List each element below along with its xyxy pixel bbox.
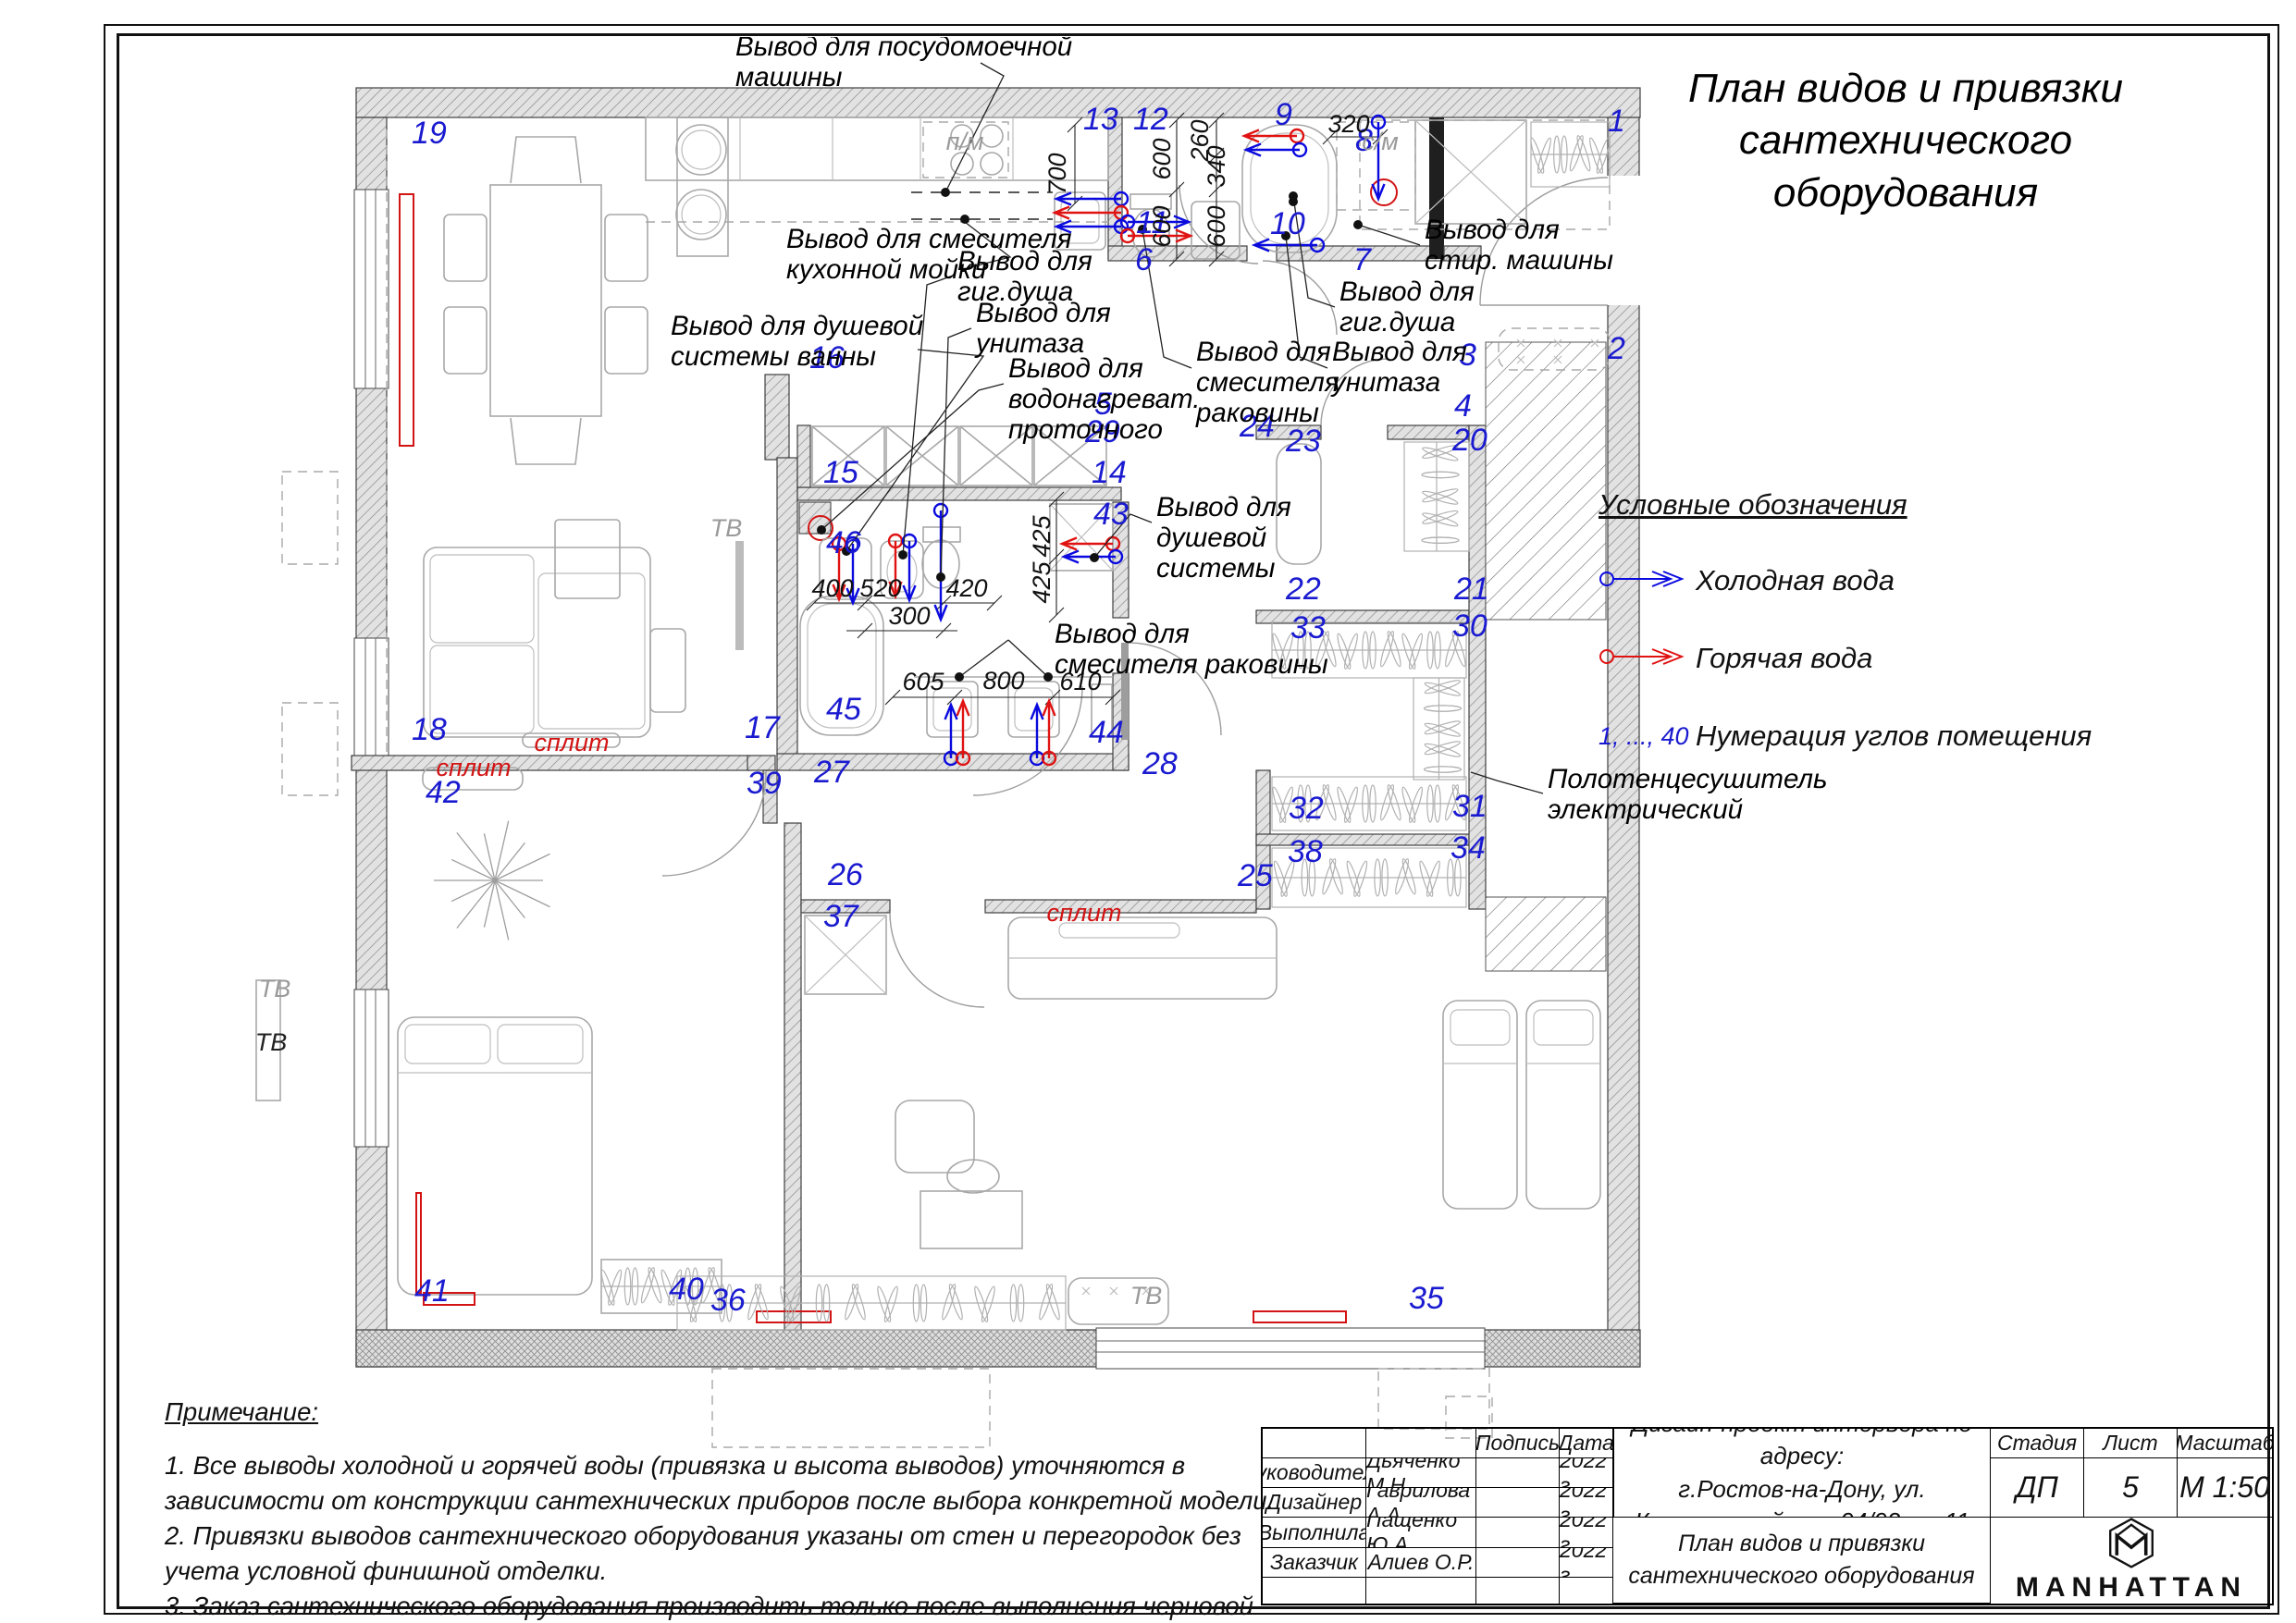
hanger [1378, 631, 1395, 668]
hanger [980, 1285, 996, 1322]
callout-wc-right: унитаза [1330, 367, 1440, 398]
tb-name: Дьяченко М.Н. [1366, 1458, 1476, 1488]
corner-number: 19 [412, 116, 447, 151]
manhattan-logo-icon [2102, 1518, 2161, 1568]
tb-scale-label: Масштаб [2178, 1429, 2272, 1458]
tb-date: 2022 г. [1560, 1548, 1613, 1578]
tb-role: Дизайнер [1263, 1488, 1366, 1518]
leader-dot [817, 525, 826, 535]
corner-number: 32 [1289, 791, 1324, 826]
hanger [639, 1267, 656, 1304]
tb-name: Пащенко Ю.А. [1366, 1518, 1476, 1548]
tb-empty [1263, 1578, 1366, 1604]
dimension-label: 600 [1203, 205, 1230, 247]
hanger [875, 1285, 892, 1322]
dimension-label: 605 [902, 668, 944, 695]
hanger [753, 1284, 770, 1321]
room-label: ТВ [255, 1028, 288, 1056]
notes: Примечание: 1. Все выводы холодной и гор… [165, 1395, 1279, 1623]
hanger [1271, 786, 1288, 823]
hanger [1378, 784, 1395, 821]
tb-sheet-label: Лист [2084, 1429, 2178, 1458]
notes-header: Примечание: [165, 1395, 1279, 1430]
dimension-label: 700 [1043, 153, 1071, 194]
corner-number: 28 [1142, 746, 1178, 781]
hanger [1336, 786, 1352, 823]
corner-number: 20 [1451, 423, 1487, 458]
leader-dot [1090, 553, 1099, 562]
hanger [1321, 858, 1338, 895]
legend-header: Условные обозначения [1599, 488, 2117, 522]
room-label: п/м [946, 128, 984, 155]
hanger [1386, 784, 1402, 821]
hanger [1037, 1284, 1054, 1321]
plant-leaf [495, 854, 549, 880]
callout-bath-shower-system: системы ванны [671, 341, 876, 372]
callout-basin-mixer-left: раковины [1195, 398, 1319, 428]
tb-doc-title: План видов и привязкисантехнического обо… [1613, 1518, 1991, 1604]
callout-dishwasher: Вывод для посудомоечной [735, 37, 1072, 62]
callout-towel-dryer: электрический [1548, 794, 1743, 825]
corner-number: 36 [710, 1283, 746, 1318]
tb-sheet-value: 5 [2084, 1458, 2178, 1518]
split-ac-label: сплит [1046, 899, 1121, 927]
tb-sign-header: Подпись [1476, 1429, 1560, 1458]
callout-basin-mixer-left: Вывод для [1196, 337, 1331, 367]
callout-water-heater: водонагреват. [1008, 384, 1200, 414]
split-ac-label: сплит [436, 754, 511, 781]
corner-number: 41 [414, 1273, 450, 1309]
hanger [1336, 633, 1352, 670]
brand-name: MANHATTAN [2016, 1572, 2247, 1604]
callout-hyg-shower-left: Вывод для [957, 246, 1092, 277]
corner-number: 18 [412, 712, 447, 747]
hanger [1407, 786, 1424, 823]
hot-water-outlet [957, 701, 969, 765]
room-label: ТВ [259, 975, 291, 1002]
legend-item-numbering: 1, ..., 40 Нумерация углов помещения [1599, 719, 2117, 753]
corner-number: 21 [1453, 572, 1489, 607]
corner-number: 27 [813, 755, 850, 790]
hanger [1568, 135, 1585, 172]
plant-leaf [451, 859, 495, 880]
callout-hyg-shower-right: Вывод для [1339, 277, 1475, 307]
tb-signature-cell [1476, 1488, 1560, 1518]
leader-dot [941, 188, 950, 197]
room-label: ТВ [1130, 1282, 1163, 1309]
hot-water-outlet [1062, 537, 1119, 550]
hanger [1342, 786, 1359, 823]
hanger [606, 1269, 623, 1306]
tb-empty [1263, 1429, 1366, 1458]
corner-number: 25 [1237, 858, 1273, 893]
tb-date: 2022 г. [1560, 1458, 1613, 1488]
dimension-label: 420 [945, 574, 987, 602]
title-block: Подпись Дата Дизайн-проект интерьера по … [1261, 1427, 2274, 1605]
callout-basin-mixer-left: смесителя [1196, 367, 1339, 398]
hanger [1401, 786, 1417, 823]
corner-number: 14 [1092, 455, 1127, 490]
callout-wc-right: Вывод для [1332, 337, 1467, 367]
corner-number: 9 [1275, 97, 1292, 132]
dimension-label: 340 [1203, 145, 1230, 187]
corner-numbering-sample: 1, ..., 40 [1599, 722, 1696, 751]
corner-number: 7 [1353, 242, 1372, 277]
note-item: 2. Привязки выводов сантехнического обор… [165, 1518, 1279, 1589]
hanger [1044, 1284, 1061, 1321]
leader-dot [1353, 220, 1363, 229]
hanger [1272, 860, 1289, 897]
dimension-label: 600 [1148, 138, 1176, 179]
hanger [940, 1284, 957, 1321]
callout-shower-system: Вывод для [1156, 492, 1291, 523]
hanger [1425, 767, 1462, 772]
tb-stage-value: ДП [1991, 1458, 2084, 1518]
callout-wc-left: Вывод для [976, 298, 1111, 328]
hanger [850, 1284, 867, 1321]
tb-role: Выполнила [1263, 1518, 1366, 1548]
corner-number: 22 [1285, 572, 1321, 607]
tb-date-header: Дата [1560, 1429, 1613, 1458]
corner-number: 39 [747, 766, 782, 801]
callout-washing-machine: стир. машины [1425, 245, 1613, 276]
legend: Условные обозначения Холодная вода Горяч… [1599, 488, 2117, 797]
callout-water-heater: Вывод для [1008, 353, 1143, 384]
dimension-label: 600 [1148, 205, 1176, 247]
tb-empty [1366, 1429, 1476, 1458]
legend-label-cold: Холодная вода [1696, 564, 1895, 597]
corner-number: 35 [1409, 1281, 1444, 1316]
split-ac-label: сплит [534, 729, 609, 756]
legend-item-cold: Холодная вода [1599, 564, 2117, 597]
leader-dot [955, 672, 964, 682]
corner-number: 4 [1454, 388, 1472, 424]
hanger [1386, 631, 1402, 668]
tb-project-address: Дизайн-проект интерьера по адресу:г.Рост… [1613, 1429, 1991, 1518]
note-item: 3. Заказ сантехнического оборудования пр… [165, 1589, 1279, 1623]
hanger [1393, 858, 1410, 895]
corner-number: 45 [826, 692, 861, 727]
leader-dot [898, 550, 907, 559]
floor-plan: 1913129811161072341652924232015144346222… [130, 37, 1980, 1609]
dimension-label: 425 [1028, 560, 1055, 603]
wardrobe-hangers [1404, 442, 1469, 551]
hanger [1342, 633, 1359, 670]
leader-dot [936, 572, 945, 582]
cold-water-arrow-icon [1599, 567, 1696, 596]
hanger [1401, 858, 1417, 895]
corner-number: 12 [1133, 102, 1168, 137]
room-label: ТВ [710, 514, 743, 542]
drawing-sheet: 1913129811161072341652924232015144346222… [0, 0, 2296, 1623]
tb-stage-label: Стадия [1991, 1429, 2084, 1458]
legend-item-hot: Горячая вода [1599, 642, 2117, 675]
hot-water-outlet [1055, 206, 1128, 219]
wardrobe-hangers [599, 1260, 723, 1313]
wardrobe-hangers [1529, 122, 1612, 187]
corner-number: 43 [1093, 497, 1129, 532]
corner-number: 34 [1450, 830, 1486, 866]
corner-number: 23 [1285, 424, 1321, 459]
corner-number: 30 [1452, 609, 1487, 644]
hanger [1401, 633, 1417, 670]
hanger [1345, 860, 1362, 897]
hanger [972, 1285, 989, 1322]
callout-kitchen-mixer: кухонной мойки [786, 254, 986, 285]
leader-dot [1289, 197, 1298, 206]
callout-basin-mixer: Вывод для [1055, 619, 1190, 649]
dimension-label: 520 [859, 574, 901, 602]
plant-leaf [495, 880, 549, 907]
plant-leaf [451, 880, 495, 902]
hanger [1418, 860, 1435, 897]
tb-logo: MANHATTAN [1991, 1518, 2272, 1604]
hanger [1425, 860, 1441, 897]
hot-water-arrow-icon [1599, 645, 1696, 673]
drawing-title-line2: сантехнического оборудования [1619, 115, 2192, 219]
tb-name: Алиев О.Р. [1366, 1548, 1476, 1578]
dimension-label: 300 [888, 602, 930, 630]
hanger [1425, 706, 1462, 711]
corner-number: 40 [669, 1272, 704, 1307]
tb-role: Заказчик [1263, 1548, 1366, 1578]
corner-number: 37 [823, 899, 859, 934]
tb-signature-cell [1476, 1518, 1560, 1548]
tb-role: Руководитель [1263, 1458, 1366, 1488]
hanger [1536, 137, 1552, 174]
cold-water-outlet [903, 535, 916, 600]
leader-dot [1043, 672, 1053, 682]
tb-empty [1476, 1578, 1560, 1604]
callout-basin-mixer: смесителя раковины [1055, 649, 1328, 680]
tb-signature-cell [1476, 1548, 1560, 1578]
leader-dot [960, 215, 969, 224]
hanger [1422, 472, 1459, 477]
leader-wc-left [941, 328, 971, 577]
corner-number: 46 [826, 525, 861, 560]
dimension-label: 800 [982, 667, 1024, 695]
hot-water-outlet [1043, 701, 1055, 765]
cold-water-outlet [1246, 143, 1306, 156]
corner-number: 10 [1270, 206, 1305, 241]
legend-label-numbering: Нумерация углов помещения [1696, 719, 2092, 753]
corner-number: 26 [827, 857, 863, 892]
hanger [1327, 858, 1344, 895]
tb-date: 2022 г. [1560, 1518, 1613, 1548]
corner-number: 38 [1288, 834, 1323, 869]
tb-signature-cell [1476, 1458, 1560, 1488]
room-label: с/м [1362, 128, 1399, 155]
hanger [1422, 537, 1459, 543]
wardrobe-hangers [1413, 678, 1464, 780]
corner-number: 13 [1083, 102, 1118, 137]
callout-shower-system: системы [1156, 553, 1276, 584]
drawing-title: План видов и привязки сантехнического об… [1619, 63, 2192, 219]
callout-dishwasher: машины [735, 62, 843, 92]
callout-washing-machine: Вывод для [1425, 215, 1560, 245]
dimension-label: 425 [1028, 514, 1055, 557]
tb-name: Гаврилова А.А. [1366, 1488, 1476, 1518]
plant [434, 821, 549, 941]
hanger [1407, 633, 1424, 670]
tb-date: 2022 г. [1560, 1488, 1613, 1518]
drawing-title-line1: План видов и привязки [1619, 63, 2192, 115]
hanger [947, 1284, 964, 1321]
callout-shower-system: душевой [1156, 523, 1266, 553]
tb-empty [1366, 1578, 1476, 1604]
callout-hyg-shower-right: гиг.душа [1339, 307, 1455, 338]
dimension-label: 400 [811, 574, 853, 602]
hanger [883, 1285, 899, 1322]
hot-water-outlet [1244, 129, 1303, 142]
hanger [1352, 860, 1368, 897]
hanger [746, 1284, 762, 1321]
corner-number: 15 [823, 455, 858, 490]
tb-empty [1560, 1578, 1613, 1604]
legend-label-hot: Горячая вода [1696, 642, 1872, 675]
callout-bath-shower-system: Вывод для душевой [671, 311, 923, 341]
corner-number: 33 [1290, 610, 1326, 646]
callout-water-heater: проточного [1008, 414, 1163, 445]
tb-scale-value: М 1:50 [2178, 1458, 2272, 1518]
corner-number: 2 [1607, 331, 1625, 366]
corner-number: 44 [1089, 715, 1124, 750]
note-item: 1. Все выводы холодной и горячей воды (п… [165, 1448, 1279, 1518]
corner-number: 17 [745, 710, 781, 745]
corner-number: 31 [1452, 789, 1487, 824]
hanger [843, 1284, 859, 1321]
